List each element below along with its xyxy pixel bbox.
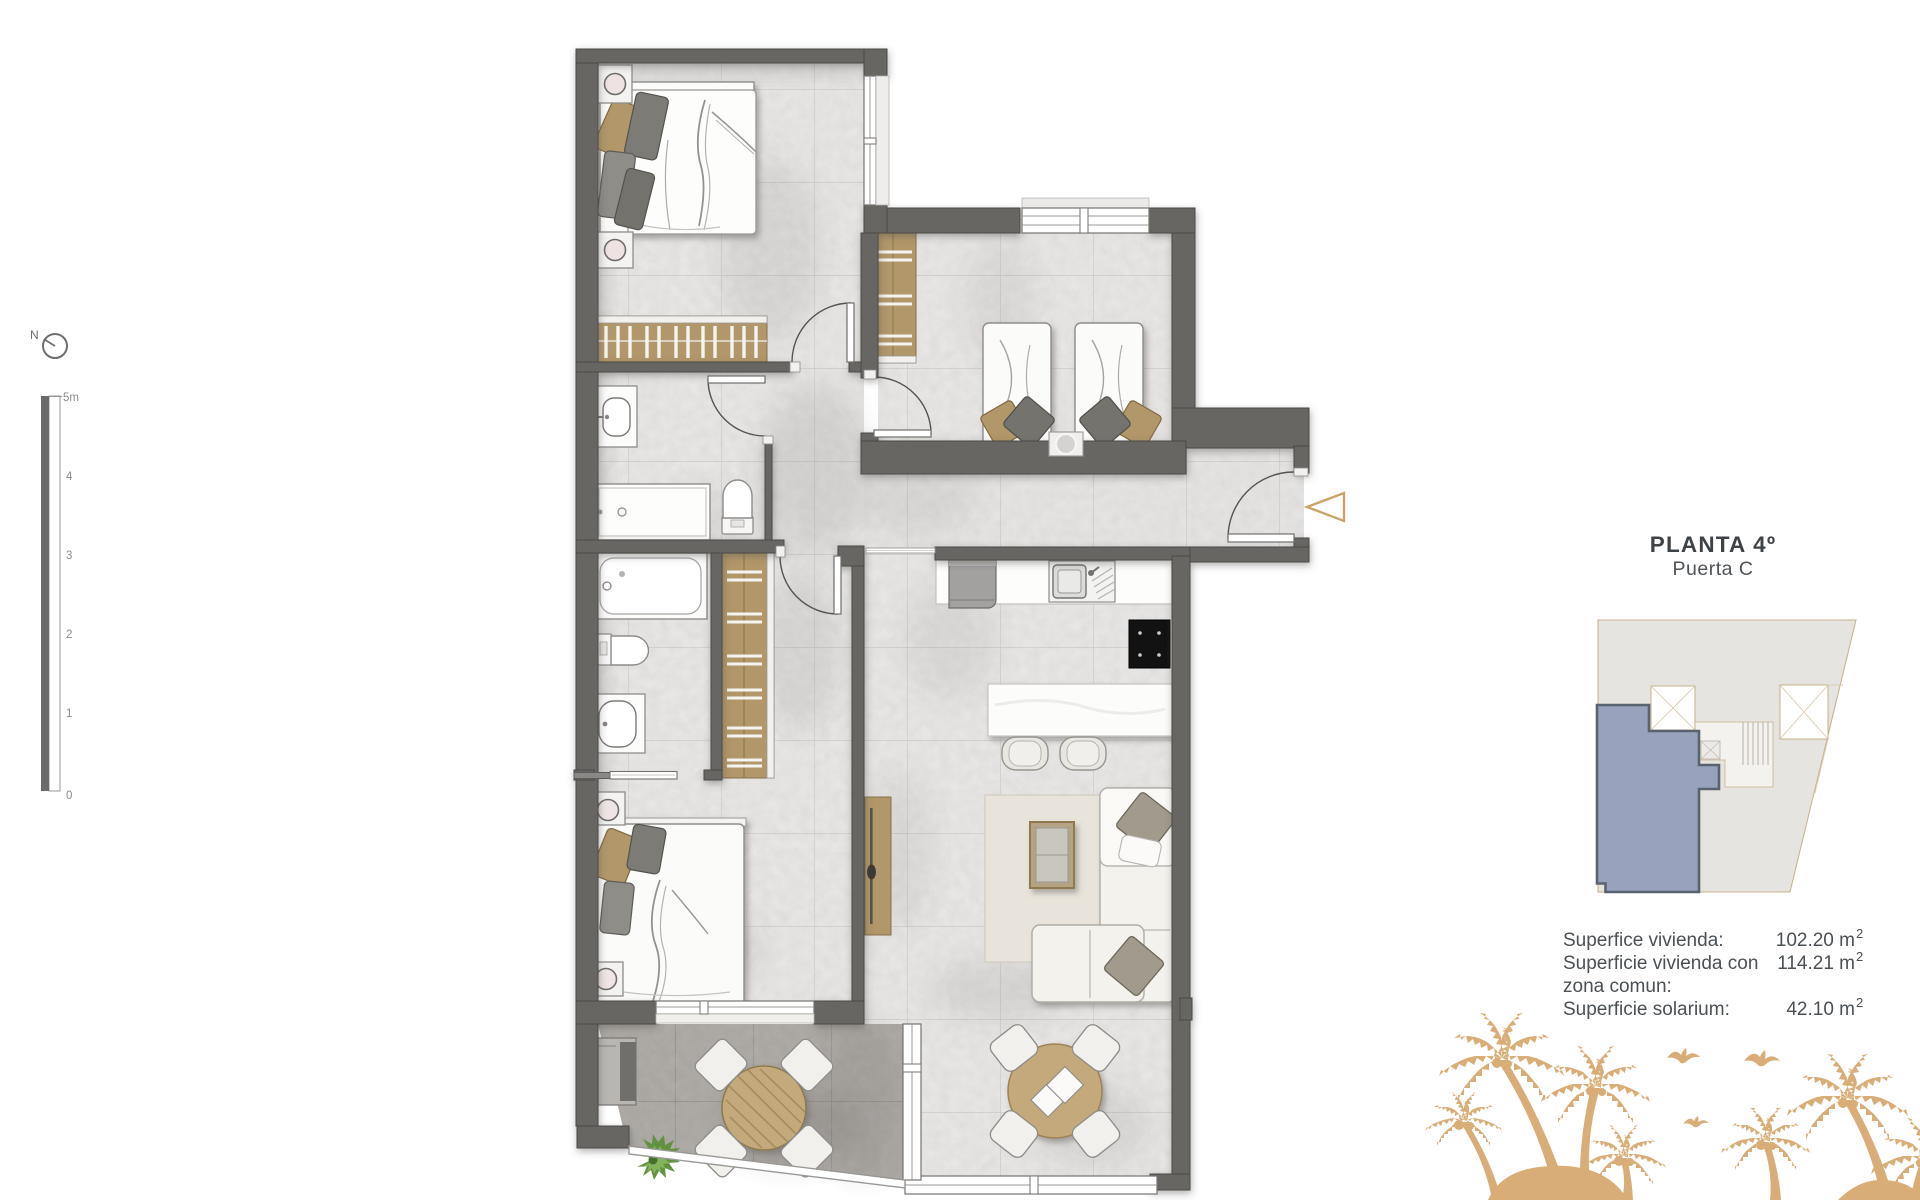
svg-text:PLANTA 4º: PLANTA 4º (1650, 532, 1777, 557)
svg-text:42.10 m: 42.10 m (1786, 999, 1855, 1020)
svg-text:2: 2 (1856, 995, 1863, 1010)
svg-text:zona comun:: zona comun: (1563, 976, 1672, 997)
svg-text:0: 0 (66, 790, 72, 802)
svg-text:102.20 m: 102.20 m (1776, 930, 1855, 951)
svg-text:Superfice vivienda:: Superfice vivienda: (1563, 930, 1724, 951)
svg-text:3: 3 (66, 550, 72, 562)
svg-text:2: 2 (1856, 949, 1863, 964)
svg-text:Superficie solarium:: Superficie solarium: (1563, 999, 1730, 1020)
svg-text:N: N (30, 328, 39, 342)
svg-text:Puerta C: Puerta C (1673, 558, 1754, 580)
svg-text:4: 4 (66, 471, 73, 483)
svg-text:1: 1 (66, 708, 72, 720)
svg-text:2: 2 (66, 629, 72, 641)
svg-text:2: 2 (1856, 926, 1863, 941)
svg-text:Superficie vivienda con: Superficie vivienda con (1563, 953, 1758, 974)
svg-text:5m: 5m (63, 392, 79, 404)
svg-text:114.21 m: 114.21 m (1777, 953, 1855, 974)
